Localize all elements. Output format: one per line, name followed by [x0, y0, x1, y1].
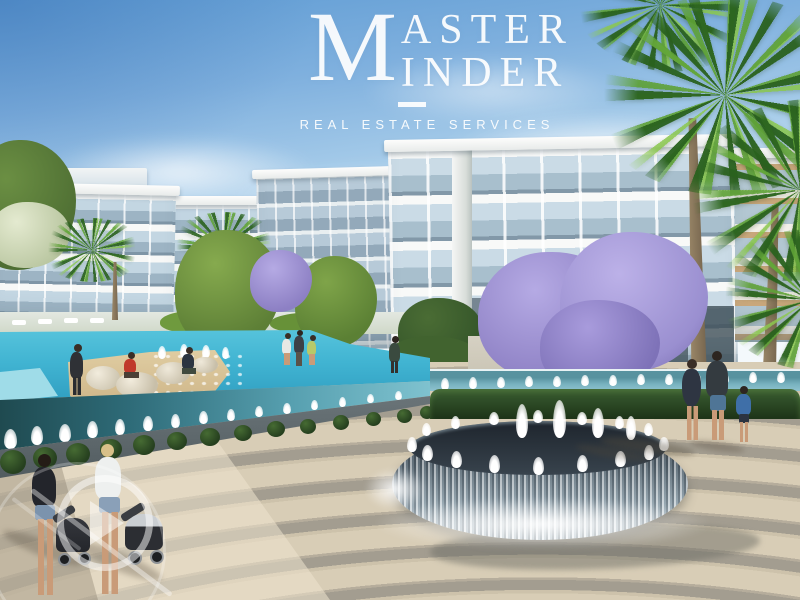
channel-jet	[311, 400, 318, 410]
channel-jet	[255, 406, 263, 417]
hedge-ball	[267, 421, 285, 437]
fountain-jet	[489, 412, 499, 425]
channel-jet	[367, 394, 374, 403]
channel-jet	[143, 416, 153, 431]
brand-tagline: REAL ESTATE SERVICES	[292, 117, 562, 132]
channel-jet	[171, 414, 180, 428]
fountain-foam	[375, 498, 710, 550]
brand-initial: M	[308, 2, 397, 96]
pool-jet	[158, 346, 166, 359]
fountain-foam	[365, 468, 425, 510]
roofline	[166, 196, 268, 205]
hedge-ball	[234, 425, 252, 441]
fountain-jet	[422, 445, 433, 461]
fountain-jet	[422, 423, 431, 436]
hedge-ball	[167, 432, 187, 450]
fountain-jet	[577, 455, 588, 472]
brand-line-bottom: INDER	[401, 52, 574, 95]
channel-jet	[777, 372, 785, 383]
lounger	[64, 318, 78, 323]
channel-jet	[665, 374, 673, 385]
hedge-ball	[0, 450, 26, 474]
fountain-jet	[451, 416, 460, 429]
hedge-ball	[133, 435, 155, 455]
channel-jet	[469, 377, 477, 389]
channel-jet	[749, 372, 757, 383]
channel-jet	[609, 375, 617, 386]
channel-jet	[581, 375, 589, 386]
channel-jet	[87, 421, 98, 438]
fountain-jet	[407, 437, 417, 452]
real-estate-rendering: M ASTER INDER REAL ESTATE SERVICES	[0, 0, 800, 600]
channel-jet	[553, 376, 561, 387]
channel-jet	[199, 411, 208, 424]
channel-jet	[637, 374, 645, 385]
fountain-jet	[626, 416, 636, 440]
fountain-jet	[516, 404, 528, 438]
channel-jet	[31, 426, 43, 445]
fountain-jet	[489, 455, 500, 473]
hedge-ball	[333, 415, 349, 430]
fountain-jet	[533, 457, 544, 475]
hedge-ball	[300, 419, 316, 434]
brand-watermark: M ASTER INDER	[308, 2, 574, 96]
pool-jet	[222, 347, 229, 359]
fountain-jet	[592, 408, 604, 438]
lounger	[38, 319, 52, 324]
hedge-ball	[366, 412, 381, 426]
channel-jet	[497, 377, 505, 388]
channel-jet	[283, 403, 291, 414]
lounger	[90, 318, 104, 323]
channel-jet	[525, 376, 533, 387]
fountain-jet	[644, 423, 653, 436]
hedge-ball	[200, 428, 220, 446]
fountain-jet	[577, 412, 587, 425]
channel-jet	[395, 391, 402, 400]
brand-divider	[398, 102, 426, 107]
channel-jet	[115, 419, 125, 435]
fountain-jet	[451, 451, 462, 468]
fountain-jet	[533, 410, 543, 423]
fountain-jet	[615, 416, 624, 429]
channel-jet	[227, 409, 235, 421]
channel-jet	[4, 429, 17, 449]
brand-line-top: ASTER	[401, 9, 574, 52]
hedge-ball	[397, 409, 412, 423]
channel-jet	[59, 424, 71, 442]
boulder-seat	[86, 366, 120, 390]
lounger	[12, 320, 26, 325]
channel-jet	[339, 397, 346, 407]
palm-tree	[40, 218, 144, 282]
